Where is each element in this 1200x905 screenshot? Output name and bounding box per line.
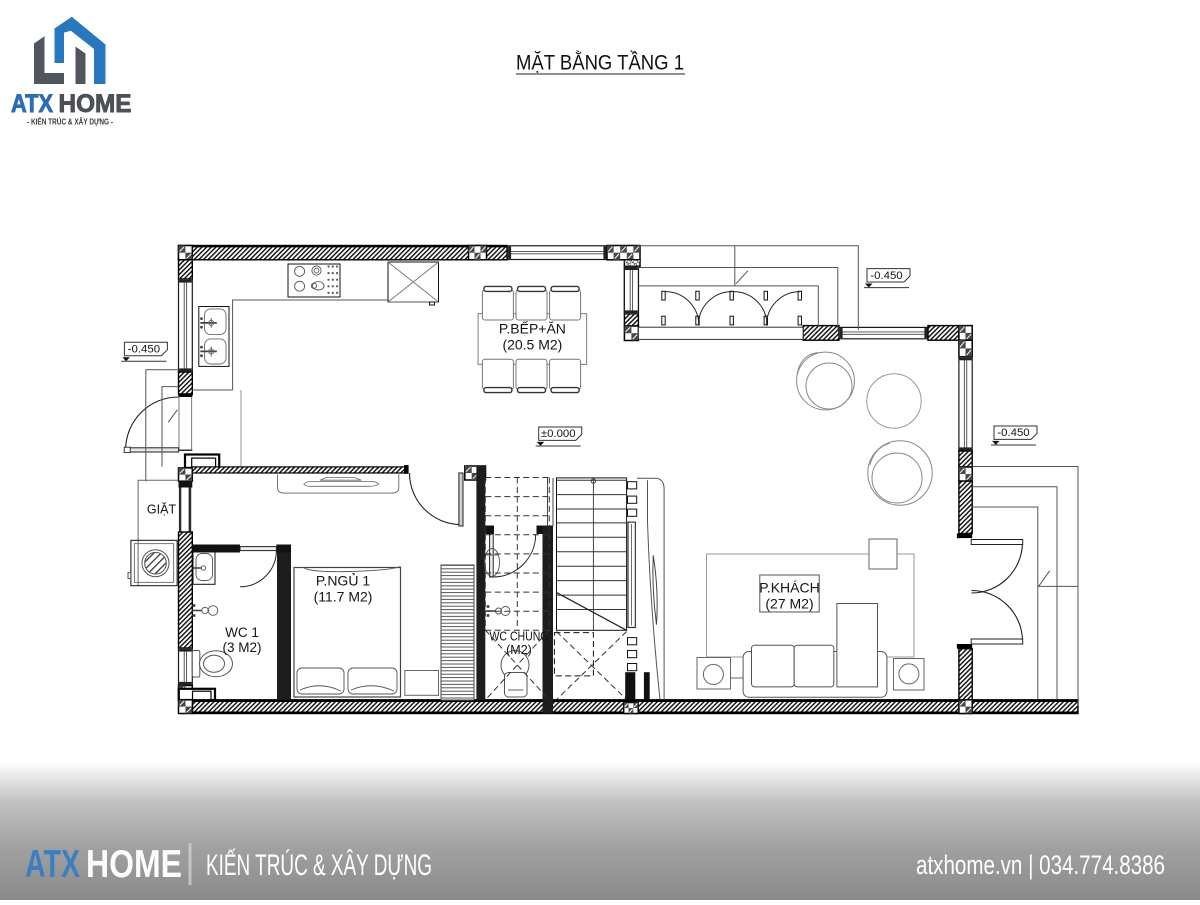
svg-text:GIẶT: GIẶT	[147, 502, 177, 517]
svg-text:-0.450: -0.450	[870, 270, 902, 282]
svg-text:-0.450: -0.450	[128, 344, 160, 356]
svg-text:(27 M2): (27 M2)	[765, 596, 813, 612]
svg-text:(20.5 M2): (20.5 M2)	[502, 337, 562, 353]
svg-text:P.KHÁCH: P.KHÁCH	[759, 580, 819, 596]
svg-text:WC 1: WC 1	[225, 625, 259, 640]
svg-text:ATX: ATX	[25, 843, 80, 886]
svg-text:MẶT BẰNG TẦNG 1: MẶT BẰNG TẦNG 1	[516, 51, 684, 75]
svg-text:HOME: HOME	[86, 843, 182, 886]
svg-text:-0.450: -0.450	[997, 427, 1029, 439]
svg-text:P.NGỦ 1: P.NGỦ 1	[316, 572, 370, 589]
svg-text:- KIẾN TRÚC & XÂY DỰNG -: - KIẾN TRÚC & XÂY DỰNG -	[27, 116, 113, 127]
svg-text:(11.7 M2): (11.7 M2)	[314, 589, 373, 605]
svg-text:atxhome.vn | 034.774.8386: atxhome.vn | 034.774.8386	[916, 850, 1165, 880]
svg-text:(M2): (M2)	[506, 643, 532, 657]
svg-text:P.BẾP+ĂN: P.BẾP+ĂN	[499, 321, 566, 337]
svg-text:WC CHUNG: WC CHUNG	[490, 630, 549, 644]
svg-text:ATX: ATX	[11, 90, 53, 118]
svg-text:(3 M2): (3 M2)	[222, 640, 261, 655]
svg-text:KIẾN TRÚC & XÂY DỰNG: KIẾN TRÚC & XÂY DỰNG	[206, 848, 432, 882]
svg-text:±0.000: ±0.000	[541, 428, 576, 440]
svg-text:HOME: HOME	[59, 90, 132, 118]
